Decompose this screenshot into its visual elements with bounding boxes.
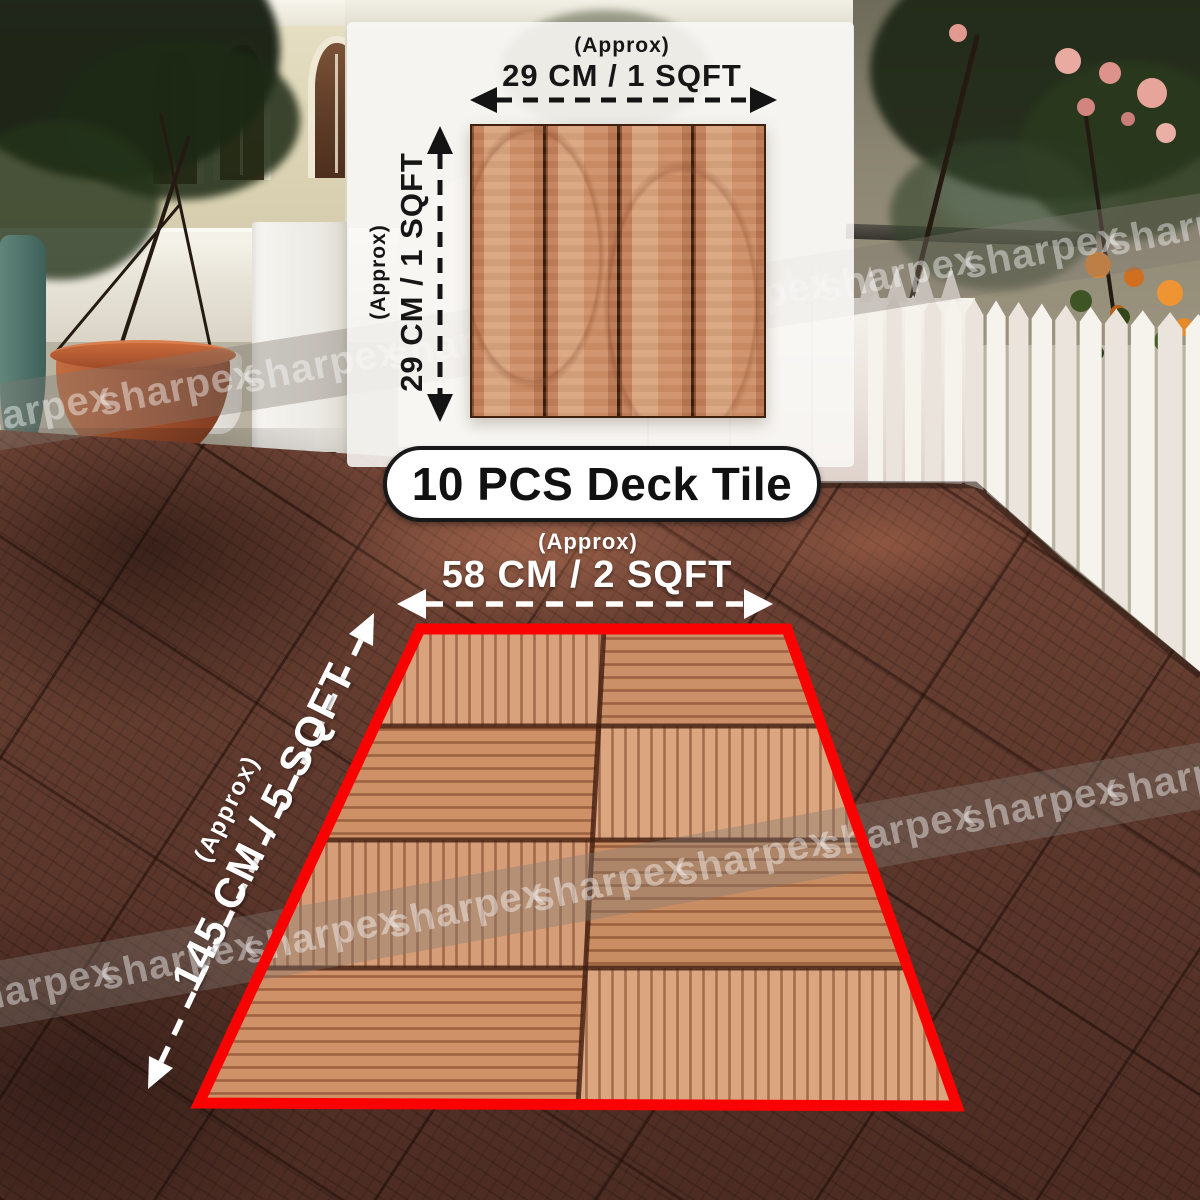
tile-height-value-label: 29 CM / 1 SQFT: [394, 152, 430, 392]
tile-height-approx-label: (Approx): [367, 224, 391, 320]
tile-width-approx-label: (Approx): [472, 34, 772, 58]
tile-width-value-label: 29 CM / 1 SQFT: [422, 58, 822, 94]
area-width-approx-label: (Approx): [438, 529, 738, 555]
area-width-value-label: 58 CM / 2 SQFT: [387, 554, 787, 597]
deck-tile-product-image: sharpexsharpexsharpexsharpexsharpexsharp…: [0, 0, 1200, 1200]
product-count-text: 10 PCS Deck Tile: [412, 457, 792, 511]
product-count-badge: 10 PCS Deck Tile: [383, 446, 821, 522]
tile-height-label-group: (Approx) 29 CM / 1 SQFT: [248, 122, 548, 422]
